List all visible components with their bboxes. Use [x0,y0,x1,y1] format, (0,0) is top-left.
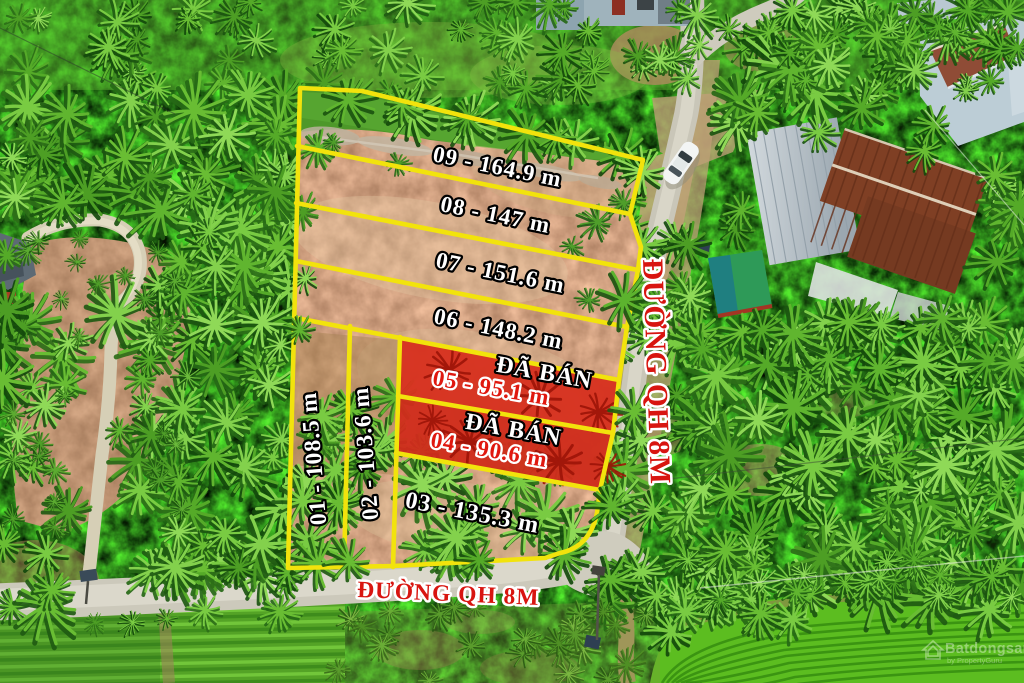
svg-text:Batdongsan: Batdongsan [945,641,1024,657]
svg-text:by PropertyGuru: by PropertyGuru [947,656,1002,665]
